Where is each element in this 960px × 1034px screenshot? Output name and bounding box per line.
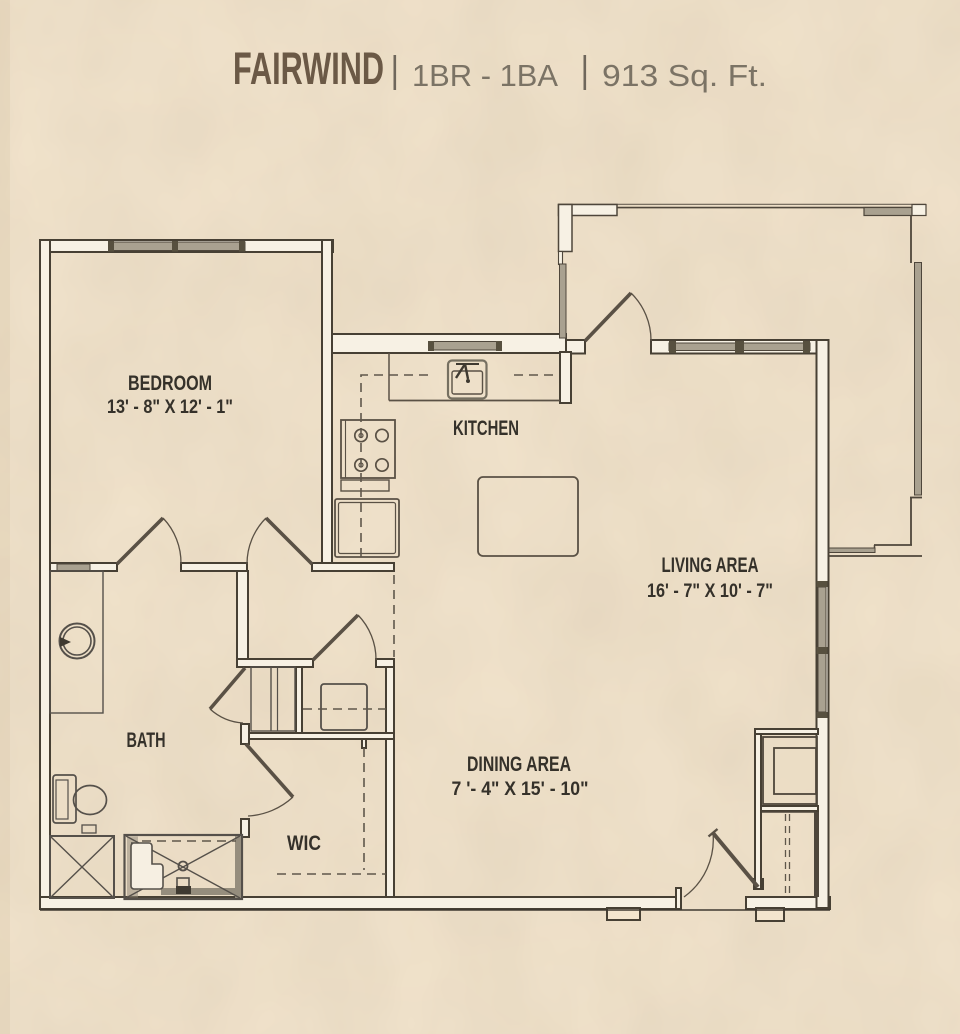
- svg-text:BEDROOM: BEDROOM: [128, 372, 212, 395]
- svg-text:7 '- 4" X 15' - 10": 7 '- 4" X 15' - 10": [452, 779, 589, 800]
- svg-text:16' - 7" X 10' - 7": 16' - 7" X 10' - 7": [647, 581, 773, 602]
- svg-text:913 Sq. Ft.: 913 Sq. Ft.: [602, 58, 767, 93]
- svg-text:1BR - 1BA: 1BR - 1BA: [412, 58, 558, 93]
- svg-text:BATH: BATH: [127, 729, 166, 752]
- svg-text:FAIRWIND: FAIRWIND: [233, 43, 384, 94]
- svg-text:DINING AREA: DINING AREA: [467, 753, 571, 776]
- svg-text:WIC: WIC: [287, 832, 321, 855]
- svg-text:LIVING AREA: LIVING AREA: [662, 554, 759, 577]
- svg-text:KITCHEN: KITCHEN: [453, 417, 519, 440]
- svg-text:13' - 8" X 12' - 1": 13' - 8" X 12' - 1": [107, 397, 233, 418]
